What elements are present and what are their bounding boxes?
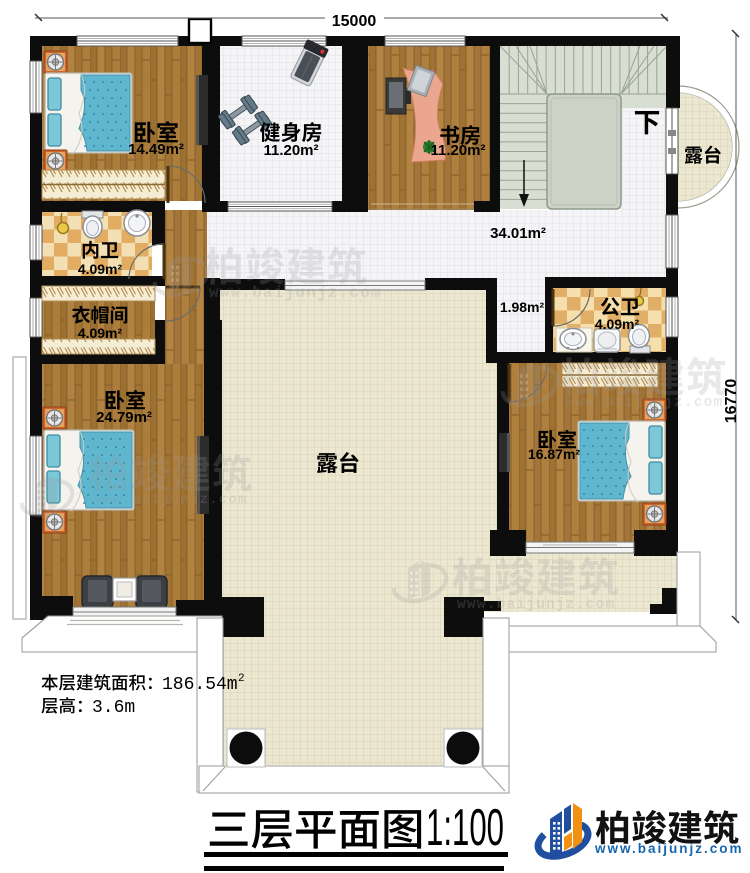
svg-text:14.49m²: 14.49m² — [128, 141, 184, 158]
svg-text:1:100: 1:100 — [426, 799, 504, 857]
svg-text:2: 2 — [238, 673, 245, 685]
svg-text:www.baijunjz.com: www.baijunjz.com — [94, 492, 248, 508]
svg-text:www.baijunjz.com: www.baijunjz.com — [457, 597, 615, 613]
svg-text:www.baijunjz.com: www.baijunjz.com — [565, 395, 723, 411]
svg-text:3.6m: 3.6m — [92, 698, 135, 718]
svg-text:www.baijunjz.com: www.baijunjz.com — [594, 841, 744, 856]
svg-text:34.01m²: 34.01m² — [490, 225, 546, 242]
svg-text:16.87m²: 16.87m² — [528, 446, 580, 462]
svg-text:1.98m²: 1.98m² — [500, 299, 545, 315]
svg-text:11.20m²: 11.20m² — [430, 142, 485, 159]
svg-text:www.baijunjz.com: www.baijunjz.com — [209, 284, 382, 302]
svg-text:15000: 15000 — [332, 13, 377, 30]
svg-text:11.20m²: 11.20m² — [263, 142, 318, 159]
svg-text:16770: 16770 — [723, 379, 740, 424]
svg-text:186.54m: 186.54m — [162, 675, 238, 695]
svg-text:24.79m²: 24.79m² — [96, 409, 152, 426]
svg-text:4.09m²: 4.09m² — [78, 325, 123, 341]
svg-text:4.09m²: 4.09m² — [78, 261, 123, 277]
svg-text:4.09m²: 4.09m² — [595, 316, 640, 332]
